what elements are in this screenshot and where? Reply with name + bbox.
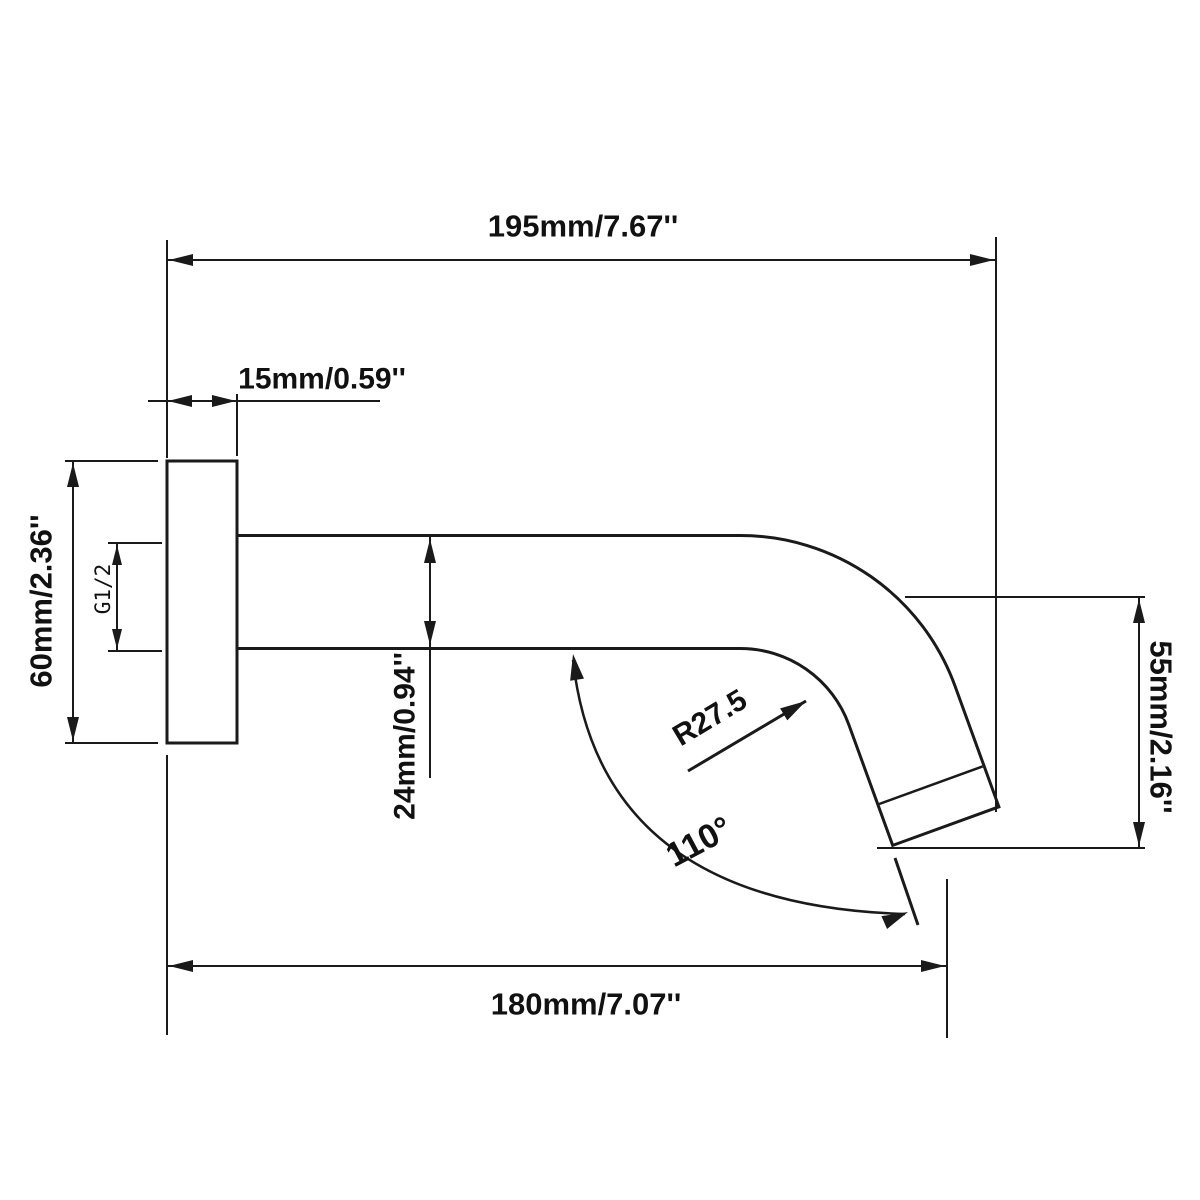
arrowhead: [168, 395, 192, 407]
dim-label-flange-height: 60mm/2.36'': [24, 514, 59, 687]
arrowhead: [67, 463, 79, 487]
arrowhead: [112, 629, 122, 649]
arrowhead: [780, 695, 809, 720]
shower-arm-body: [167, 461, 983, 828]
arrowhead: [169, 960, 193, 972]
dim-label-pipe-diameter: 24mm/0.94'': [389, 652, 422, 820]
dim-label-thread-size: G1/2: [91, 564, 115, 615]
dimension-drawing: 195mm/7.67'' 15mm/0.59'' 60mm/2.36'' G1/…: [0, 0, 1200, 1200]
dim-label-bend-radius: R27.5: [667, 683, 753, 753]
wall-flange: [167, 461, 237, 743]
arrowhead: [67, 717, 79, 741]
arrowhead: [1133, 599, 1145, 623]
arrowhead: [566, 653, 584, 681]
dim-label-overall-length: 195mm/7.67'': [488, 209, 679, 244]
pipe-fill: [237, 592, 945, 825]
dim-label-projection-length: 180mm/7.07'': [491, 987, 682, 1022]
dim-label-flange-depth: 15mm/0.59'': [238, 363, 406, 396]
arrowhead: [881, 906, 910, 929]
shower-arm-drawing-canvas: 195mm/7.67'' 15mm/0.59'' 60mm/2.36'' G1/…: [0, 0, 1200, 1200]
arrowhead: [112, 545, 122, 565]
arrowhead: [212, 395, 236, 407]
arrowhead: [169, 254, 193, 266]
arrowhead: [970, 254, 994, 266]
arrowhead: [1133, 822, 1145, 846]
dim-label-drop-height: 55mm/2.16'': [1144, 640, 1179, 813]
arrowhead: [921, 960, 945, 972]
